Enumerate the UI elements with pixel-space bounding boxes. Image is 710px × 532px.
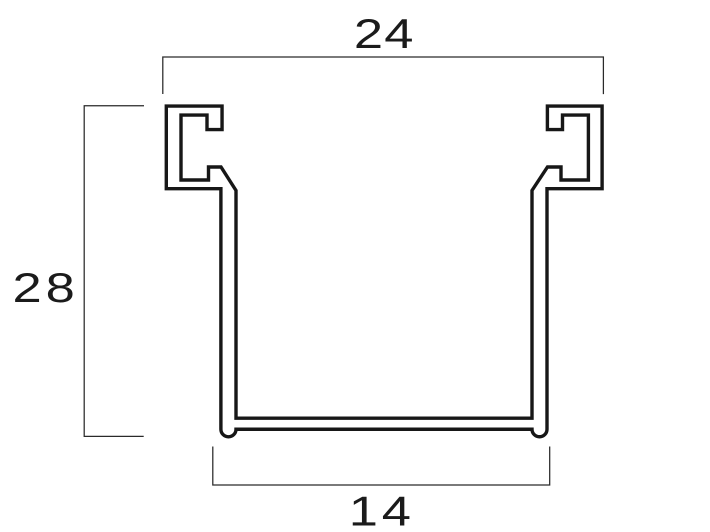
svg-text:2: 2 [13,265,42,312]
svg-text:4: 4 [384,11,413,58]
svg-text:1: 1 [349,488,378,532]
svg-text:2: 2 [354,11,383,58]
svg-text:8: 8 [46,265,75,312]
svg-text:4: 4 [382,488,411,532]
